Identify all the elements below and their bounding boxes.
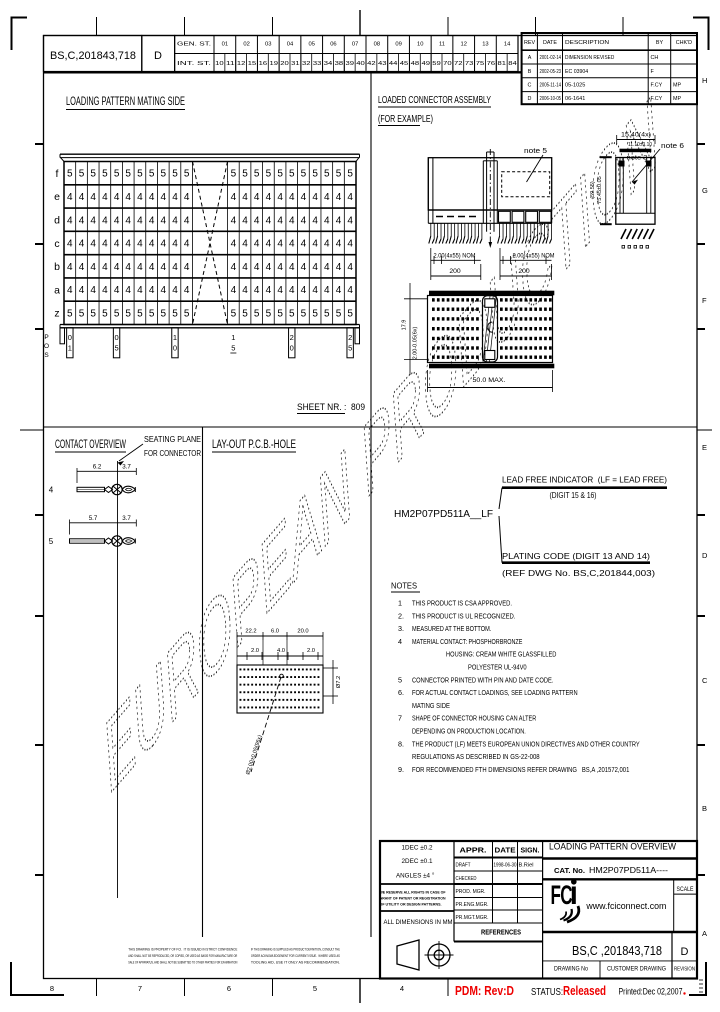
- svg-text:5: 5: [277, 169, 283, 180]
- svg-text:2001-02-14: 2001-02-14: [540, 55, 562, 61]
- svg-text:4: 4: [125, 215, 131, 226]
- svg-text:4: 4: [172, 262, 178, 273]
- svg-text:D: D: [681, 946, 689, 958]
- svg-text:5: 5: [398, 675, 402, 684]
- svg-text:4: 4: [114, 262, 120, 273]
- svg-text:4: 4: [336, 285, 342, 296]
- svg-text:2.0: 2.0: [307, 648, 315, 654]
- svg-text:REVISION: REVISION: [674, 967, 695, 973]
- svg-text:(59.55): (59.55): [590, 181, 596, 199]
- svg-text:06-1641: 06-1641: [565, 96, 585, 102]
- svg-text:05: 05: [308, 42, 314, 48]
- svg-text:1: 1: [173, 333, 177, 342]
- svg-text:D: D: [528, 96, 532, 102]
- svg-text:5: 5: [149, 169, 155, 180]
- svg-text:5: 5: [184, 169, 190, 180]
- svg-text:THIS PRODUCT IS UL RECOGNIZED.: THIS PRODUCT IS UL RECOGNIZED.: [412, 611, 516, 620]
- svg-text:4: 4: [336, 262, 342, 273]
- svg-text:FOR ACTUAL CONTACT LOADINGS, S: FOR ACTUAL CONTACT LOADINGS, SEE LOADING…: [412, 688, 578, 697]
- svg-text:4: 4: [114, 239, 120, 250]
- svg-text:5.7: 5.7: [89, 515, 98, 522]
- svg-text:PROD. MGR.: PROD. MGR.: [456, 889, 486, 895]
- svg-text:LEAD FREE INDICATOR (LF = LEA: LEAD FREE INDICATOR (LF = LEAD FREE): [502, 476, 667, 485]
- svg-text:4: 4: [242, 262, 248, 273]
- svg-text:04: 04: [287, 42, 294, 48]
- svg-text:4: 4: [149, 215, 155, 226]
- svg-text:B: B: [528, 69, 532, 75]
- svg-text:note 3: note 3: [627, 155, 648, 162]
- svg-text:49: 49: [421, 61, 430, 67]
- svg-text:73: 73: [465, 61, 474, 67]
- svg-text:MATING SIDE: MATING SIDE: [412, 701, 450, 710]
- svg-text:32: 32: [302, 61, 311, 67]
- svg-text:PDM: Rev:D: PDM: Rev:D: [455, 983, 514, 998]
- svg-text:4: 4: [301, 285, 307, 296]
- svg-text:5: 5: [324, 309, 330, 320]
- svg-text:5: 5: [137, 309, 143, 320]
- svg-text:CUSTOMER DRAWING: CUSTOMER DRAWING: [607, 967, 666, 973]
- svg-text:4: 4: [277, 239, 283, 250]
- svg-text:4: 4: [184, 192, 190, 203]
- svg-text:4: 4: [301, 239, 307, 250]
- svg-text:8.: 8.: [398, 739, 404, 748]
- svg-text:5: 5: [67, 309, 73, 320]
- svg-text:1: 1: [68, 344, 72, 353]
- svg-text:5: 5: [289, 309, 295, 320]
- svg-text:4: 4: [90, 192, 96, 203]
- svg-text:12: 12: [460, 42, 466, 48]
- svg-text:11: 11: [226, 61, 235, 67]
- svg-text:5: 5: [114, 169, 120, 180]
- svg-text:5: 5: [149, 309, 155, 320]
- svg-text:08: 08: [374, 42, 380, 48]
- svg-text:2: 2: [290, 333, 294, 342]
- svg-text:E: E: [702, 443, 707, 452]
- svg-text:4: 4: [67, 239, 73, 250]
- svg-text:4: 4: [67, 215, 73, 226]
- svg-text:75: 75: [476, 61, 485, 67]
- svg-text:44: 44: [389, 61, 399, 67]
- svg-text:19: 19: [269, 61, 278, 67]
- svg-text:4: 4: [301, 262, 307, 273]
- svg-text:4: 4: [149, 192, 155, 203]
- svg-text:4: 4: [184, 262, 190, 273]
- svg-text:4: 4: [67, 192, 73, 203]
- svg-text:HM2P07PD511A__LF: HM2P07PD511A__LF: [394, 509, 493, 520]
- svg-text:4: 4: [90, 215, 96, 226]
- svg-text:4: 4: [347, 192, 353, 203]
- svg-text:HM2P07PD511A----: HM2P07PD511A----: [589, 865, 668, 875]
- svg-text:5: 5: [348, 344, 352, 353]
- svg-text:THIS DRAWING IS PROPERTY OF FC: THIS DRAWING IS PROPERTY OF FCI. IT IS I…: [128, 948, 237, 952]
- svg-text:4: 4: [301, 215, 307, 226]
- svg-text:C: C: [528, 83, 532, 89]
- svg-text:17.9: 17.9: [402, 320, 408, 331]
- svg-text:4: 4: [254, 192, 260, 203]
- svg-text:PR.MGT.MGR.: PR.MGT.MGR.: [456, 915, 489, 921]
- svg-text:2.00(4x55) NOM: 2.00(4x55) NOM: [434, 253, 476, 260]
- svg-text:4: 4: [67, 262, 73, 273]
- svg-text:z: z: [54, 308, 59, 320]
- svg-text:WE RESERVE ALL RIGHTS IN CASE: WE RESERVE ALL RIGHTS IN CASE OF: [380, 890, 447, 895]
- svg-text:DESCRIPTION: DESCRIPTION: [565, 40, 609, 46]
- svg-text:4: 4: [289, 192, 295, 203]
- svg-text:14: 14: [504, 42, 511, 48]
- svg-text:DIMENSION REVISED: DIMENSION REVISED: [565, 55, 614, 61]
- svg-text:40: 40: [356, 61, 365, 67]
- svg-text:4: 4: [266, 215, 272, 226]
- svg-text:Ø7.2: Ø7.2: [336, 676, 342, 689]
- svg-text:4: 4: [312, 239, 318, 250]
- svg-text:note 6: note 6: [661, 141, 684, 150]
- svg-text:DRAFT: DRAFT: [456, 863, 471, 869]
- svg-text:9.: 9.: [398, 765, 404, 774]
- svg-text:4: 4: [254, 262, 260, 273]
- svg-text:4: 4: [277, 215, 283, 226]
- svg-text:4: 4: [137, 239, 143, 250]
- svg-text:4: 4: [149, 285, 155, 296]
- svg-text:F: F: [702, 296, 707, 305]
- svg-text:LOADING PATTERN OVERVIEW: LOADING PATTERN OVERVIEW: [549, 842, 676, 853]
- svg-text:BS,C,201843,718: BS,C,201843,718: [50, 50, 136, 62]
- svg-text:4: 4: [137, 262, 143, 273]
- svg-text:GEN. ST.: GEN. ST.: [177, 42, 212, 48]
- svg-text:38: 38: [335, 61, 344, 67]
- svg-text:LOADED CONNECTOR ASSEMBLY: LOADED CONNECTOR ASSEMBLY: [378, 94, 491, 106]
- svg-text:STATUS:: STATUS:: [531, 986, 563, 998]
- svg-text:4: 4: [67, 285, 73, 296]
- svg-text:2006-10-05: 2006-10-05: [540, 96, 562, 102]
- svg-text:4: 4: [231, 215, 237, 226]
- svg-text:75.45±0.05: 75.45±0.05: [597, 176, 603, 204]
- svg-text:72: 72: [454, 61, 463, 67]
- svg-text:4: 4: [312, 285, 318, 296]
- svg-text:01: 01: [222, 42, 228, 48]
- svg-text:5: 5: [102, 309, 108, 320]
- svg-text:3.7: 3.7: [122, 515, 131, 522]
- svg-text:4: 4: [90, 285, 96, 296]
- svg-text:07: 07: [352, 42, 358, 48]
- svg-text:NOTES: NOTES: [391, 581, 417, 591]
- svg-text:4: 4: [102, 285, 108, 296]
- svg-text:ORDER ACKNOWLEDGEMENT FOR CURR: ORDER ACKNOWLEDGEMENT FOR CURRENT ISSUE.…: [251, 954, 340, 958]
- svg-text:(DIGIT 15 & 16): (DIGIT 15 & 16): [550, 491, 597, 500]
- svg-text:4: 4: [231, 239, 237, 250]
- svg-text:0: 0: [173, 344, 177, 353]
- svg-text:5: 5: [312, 309, 318, 320]
- svg-text:FOR CONNECTOR: FOR CONNECTOR: [144, 449, 201, 458]
- svg-text:TOOLING AID, USE IT ONLY AS RE: TOOLING AID, USE IT ONLY AS RECOMMENDATI…: [251, 960, 340, 964]
- svg-text:5: 5: [254, 309, 260, 320]
- svg-text:5: 5: [254, 169, 260, 180]
- svg-text:MATERIAL CONTACT: PHOSPHORBRON: MATERIAL CONTACT: PHOSPHORBRONZE: [412, 637, 523, 646]
- svg-text:4: 4: [289, 239, 295, 250]
- svg-text:POLYESTER UL-94V0: POLYESTER UL-94V0: [468, 663, 527, 672]
- svg-text:4: 4: [137, 215, 143, 226]
- svg-text:4: 4: [161, 192, 167, 203]
- svg-text:PR.ENG.MGR.: PR.ENG.MGR.: [456, 902, 489, 908]
- svg-text:5: 5: [301, 169, 307, 180]
- svg-text:5: 5: [49, 537, 54, 546]
- svg-text:4: 4: [254, 239, 260, 250]
- svg-text:5: 5: [231, 309, 237, 320]
- svg-text:50.0 MAX.: 50.0 MAX.: [473, 377, 506, 384]
- svg-text:5: 5: [242, 309, 248, 320]
- svg-text:4: 4: [231, 262, 237, 273]
- svg-text:43: 43: [378, 61, 387, 67]
- svg-text:P: P: [44, 334, 48, 341]
- svg-text:PLATING CODE (DIGIT 13 AND 14): PLATING CODE (DIGIT 13 AND 14): [502, 552, 650, 561]
- svg-text:f: f: [56, 168, 59, 180]
- svg-text:DATE: DATE: [543, 40, 557, 46]
- svg-text:4: 4: [398, 637, 402, 646]
- svg-text:0: 0: [114, 333, 118, 342]
- svg-text:39: 39: [345, 61, 354, 67]
- svg-text:H: H: [702, 76, 707, 85]
- svg-text:5: 5: [266, 309, 272, 320]
- svg-text:2005-11-14: 2005-11-14: [540, 83, 562, 89]
- svg-text:4: 4: [184, 215, 190, 226]
- svg-text:5: 5: [289, 169, 295, 180]
- svg-text:12: 12: [237, 61, 246, 67]
- svg-text:4: 4: [347, 285, 353, 296]
- svg-text:4: 4: [161, 285, 167, 296]
- svg-text:5: 5: [231, 344, 235, 353]
- svg-text:4: 4: [184, 285, 190, 296]
- svg-text:48: 48: [411, 61, 420, 67]
- svg-text:81: 81: [497, 61, 506, 67]
- svg-text:31: 31: [291, 61, 300, 67]
- svg-text:DEPENDING ON PRODUCTION LOCATI: DEPENDING ON PRODUCTION LOCATION.: [412, 727, 526, 736]
- svg-text:4: 4: [301, 192, 307, 203]
- svg-text:6.: 6.: [398, 688, 404, 697]
- svg-text:(REF DWG No. BS,C,201844,003): (REF DWG No. BS,C,201844,003): [502, 569, 655, 578]
- svg-text:03: 03: [265, 42, 271, 48]
- svg-text:Printed:Dec 02,2007: Printed:Dec 02,2007: [619, 987, 683, 997]
- svg-text:4: 4: [172, 215, 178, 226]
- svg-text:MP: MP: [673, 83, 681, 89]
- svg-text:C: C: [702, 676, 708, 685]
- svg-text:MEASURED AT THE BOTTOM.: MEASURED AT THE BOTTOM.: [412, 624, 491, 633]
- svg-text:4: 4: [172, 192, 178, 203]
- svg-text:5: 5: [172, 309, 178, 320]
- svg-text:2.0: 2.0: [251, 648, 259, 654]
- svg-text:5: 5: [336, 169, 342, 180]
- svg-text:4: 4: [79, 215, 85, 226]
- svg-text:A: A: [702, 929, 707, 938]
- svg-text:O: O: [44, 343, 49, 350]
- svg-text:4: 4: [336, 239, 342, 250]
- svg-text:2: 2: [348, 333, 352, 342]
- svg-text:5: 5: [161, 169, 167, 180]
- svg-text:4: 4: [312, 215, 318, 226]
- svg-text:4: 4: [312, 192, 318, 203]
- svg-text:11: 11: [439, 42, 445, 48]
- svg-text:4: 4: [231, 192, 237, 203]
- svg-text:CH: CH: [651, 55, 659, 61]
- svg-text:GRANT OF PATENT OR REGISTRATIO: GRANT OF PATENT OR REGISTRATION: [380, 896, 446, 901]
- svg-text:D: D: [154, 50, 162, 62]
- svg-text:4: 4: [102, 239, 108, 250]
- svg-text:4: 4: [49, 486, 54, 495]
- svg-text:4: 4: [347, 262, 353, 273]
- svg-text:59: 59: [432, 61, 441, 67]
- svg-text:A: A: [528, 55, 532, 61]
- svg-text:09: 09: [395, 42, 401, 48]
- svg-text:1998-06-30: 1998-06-30: [494, 863, 517, 869]
- svg-text:4: 4: [324, 262, 330, 273]
- svg-text:2.00(4x55) NOM: 2.00(4x55) NOM: [513, 253, 555, 260]
- svg-text:4: 4: [347, 215, 353, 226]
- svg-text:CAT. No.: CAT. No.: [554, 866, 585, 875]
- svg-text:4: 4: [172, 239, 178, 250]
- svg-text:4: 4: [184, 239, 190, 250]
- svg-text:4: 4: [254, 285, 260, 296]
- svg-text:10: 10: [417, 42, 423, 48]
- svg-text:34: 34: [324, 61, 334, 67]
- svg-text:02: 02: [243, 42, 249, 48]
- svg-text:15: 15: [248, 61, 257, 67]
- svg-text:200: 200: [449, 268, 461, 275]
- svg-text:4: 4: [114, 215, 120, 226]
- svg-text:4: 4: [289, 262, 295, 273]
- svg-text:SALE OF APPARATUS, AND SHALL N: SALE OF APPARATUS, AND SHALL NOT BE SUBM…: [128, 960, 237, 964]
- svg-text:06: 06: [330, 42, 336, 48]
- svg-text:ALL DIMENSIONS IN MM: ALL DIMENSIONS IN MM: [384, 919, 453, 926]
- svg-text:5: 5: [161, 309, 167, 320]
- svg-text:d: d: [54, 215, 60, 227]
- svg-text:a: a: [54, 284, 60, 296]
- svg-text:(FOR EXAMPLE): (FOR EXAMPLE): [378, 114, 433, 125]
- svg-text:4: 4: [336, 192, 342, 203]
- svg-text:3.7: 3.7: [122, 464, 131, 471]
- svg-text:DRAWING No: DRAWING No: [554, 967, 589, 973]
- svg-text:2002-05-23: 2002-05-23: [540, 69, 562, 75]
- svg-text:1DEC ±0.2: 1DEC ±0.2: [402, 845, 433, 852]
- svg-text:SIGN.: SIGN.: [521, 846, 540, 855]
- svg-text:5: 5: [90, 169, 96, 180]
- svg-text:5: 5: [277, 309, 283, 320]
- svg-text:REV: REV: [524, 40, 535, 46]
- svg-text:16: 16: [259, 61, 268, 67]
- svg-text:5: 5: [324, 169, 330, 180]
- svg-text:5: 5: [79, 169, 85, 180]
- svg-text:MP: MP: [673, 96, 681, 102]
- svg-text:0: 0: [68, 333, 72, 342]
- svg-text:4: 4: [125, 285, 131, 296]
- svg-text:4: 4: [242, 215, 248, 226]
- svg-text:4: 4: [137, 285, 143, 296]
- svg-text:4: 4: [161, 215, 167, 226]
- svg-text:70: 70: [443, 61, 452, 67]
- svg-text:4: 4: [324, 285, 330, 296]
- svg-text:4: 4: [347, 239, 353, 250]
- svg-text:4: 4: [324, 215, 330, 226]
- svg-text:SCALE: SCALE: [677, 887, 694, 893]
- svg-text:1: 1: [231, 333, 235, 342]
- svg-text:4: 4: [125, 192, 131, 203]
- svg-text:7: 7: [138, 984, 142, 993]
- svg-text:APPR.: APPR.: [460, 846, 487, 855]
- svg-text:INT. ST.: INT. ST.: [177, 61, 212, 67]
- svg-text:B.Riel: B.Riel: [519, 863, 534, 869]
- svg-text:5: 5: [125, 309, 131, 320]
- svg-text:4: 4: [149, 239, 155, 250]
- svg-text:CHECKED: CHECKED: [456, 876, 477, 882]
- svg-text:5: 5: [114, 309, 120, 320]
- svg-text:4: 4: [231, 285, 237, 296]
- svg-text:b: b: [54, 261, 60, 273]
- svg-text:4: 4: [242, 285, 248, 296]
- svg-text:4: 4: [277, 285, 283, 296]
- svg-text:4: 4: [277, 192, 283, 203]
- svg-text:4: 4: [161, 239, 167, 250]
- svg-text:c: c: [54, 238, 59, 250]
- svg-text:www.fciconnect.com: www.fciconnect.com: [585, 901, 666, 911]
- svg-text:4: 4: [324, 192, 330, 203]
- svg-text:2DEC ±0.1: 2DEC ±0.1: [402, 858, 433, 865]
- svg-text:REGULATIONS AS DESCRIBED IN GS: REGULATIONS AS DESCRIBED IN GS-22-008: [412, 752, 540, 761]
- svg-text:F.CY: F.CY: [651, 96, 663, 102]
- svg-text:10: 10: [215, 61, 224, 67]
- svg-text:42: 42: [367, 61, 376, 67]
- svg-text:LAY-OUT P.C.B.-HOLE: LAY-OUT P.C.B.-HOLE: [212, 439, 296, 451]
- svg-text:SEATING PLANE: SEATING PLANE: [144, 435, 201, 444]
- svg-text:B: B: [702, 804, 707, 813]
- svg-text:7: 7: [398, 714, 402, 723]
- svg-text:5: 5: [336, 309, 342, 320]
- svg-text:4: 4: [79, 285, 85, 296]
- svg-text:3.: 3.: [398, 624, 404, 633]
- svg-text:4: 4: [161, 262, 167, 273]
- svg-text:CONNECTOR PRINTED WITH P/N AND: CONNECTOR PRINTED WITH P/N AND DATE CODE…: [412, 675, 553, 684]
- svg-text:4: 4: [277, 262, 283, 273]
- svg-text:e: e: [54, 191, 60, 203]
- svg-text:4: 4: [149, 262, 155, 273]
- svg-text:5: 5: [90, 309, 96, 320]
- svg-text:4: 4: [90, 262, 96, 273]
- svg-text:D: D: [702, 551, 708, 560]
- svg-text:45: 45: [400, 61, 409, 67]
- svg-text:SHEET NR. : 809: SHEET NR. : 809: [297, 402, 365, 412]
- svg-text:05-1025: 05-1025: [565, 83, 585, 89]
- svg-text:6.0: 6.0: [271, 629, 279, 635]
- svg-text:5: 5: [172, 169, 178, 180]
- svg-text:1: 1: [398, 599, 402, 608]
- svg-text:4: 4: [79, 192, 85, 203]
- svg-text:5: 5: [347, 309, 353, 320]
- svg-text:FC: FC: [551, 880, 573, 910]
- svg-text:AND SHALL NOT BE REPRODUCED, O: AND SHALL NOT BE REPRODUCED, OR COPIED, …: [128, 954, 237, 958]
- svg-text:4: 4: [289, 285, 295, 296]
- svg-text:4: 4: [254, 215, 260, 226]
- svg-text:4: 4: [242, 192, 248, 203]
- svg-text:5: 5: [114, 344, 118, 353]
- svg-text:4: 4: [242, 239, 248, 250]
- svg-text:200: 200: [518, 268, 530, 275]
- svg-text:5: 5: [184, 309, 190, 320]
- svg-text:6: 6: [227, 984, 231, 993]
- svg-text:4: 4: [324, 239, 330, 250]
- svg-text:4: 4: [102, 192, 108, 203]
- svg-text:4: 4: [102, 215, 108, 226]
- svg-text:0: 0: [290, 344, 294, 353]
- svg-text:F.CY: F.CY: [651, 83, 663, 89]
- svg-text:2.: 2.: [398, 611, 404, 620]
- svg-text:11.10±0.10: 11.10±0.10: [628, 142, 652, 148]
- svg-text:4: 4: [400, 984, 404, 993]
- svg-text:4: 4: [266, 262, 272, 273]
